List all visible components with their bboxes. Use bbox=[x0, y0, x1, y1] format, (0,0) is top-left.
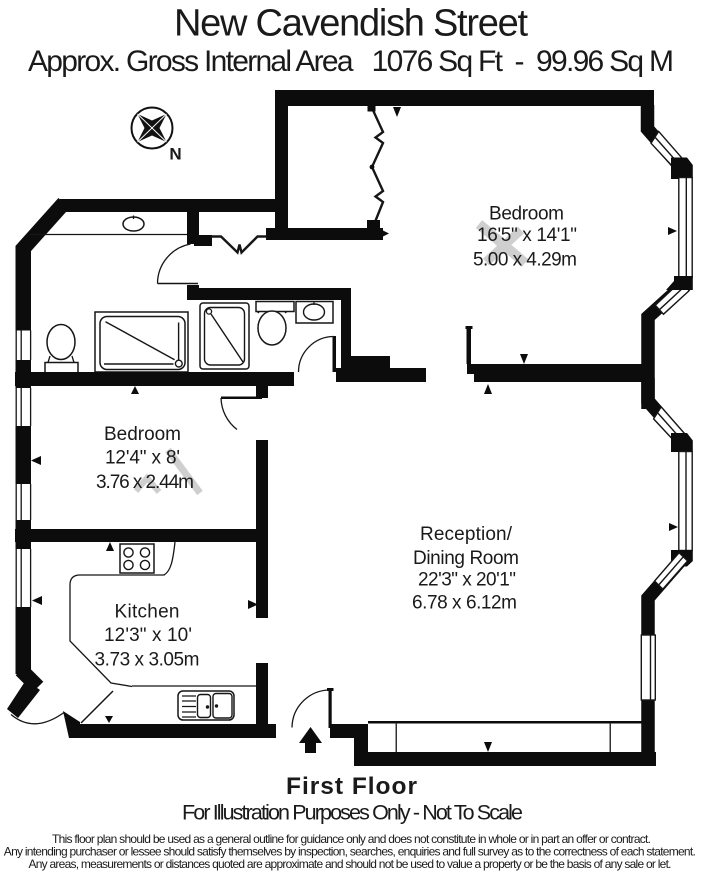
svg-text:N: N bbox=[169, 145, 181, 164]
svg-text:Bedroom: Bedroom bbox=[489, 204, 564, 225]
svg-text:Dining Room: Dining Room bbox=[413, 548, 519, 569]
svg-text:New Cavendish Street: New Cavendish Street bbox=[174, 3, 528, 45]
svg-text:Approx. Gross Internal Area: Approx. Gross Internal Area 1076 Sq Ft -… bbox=[28, 45, 674, 78]
svg-text:For Illustration Purposes Only: For Illustration Purposes Only - Not To … bbox=[182, 801, 523, 825]
svg-text:Any areas, measurements or dis: Any areas, measurements or distances quo… bbox=[29, 857, 672, 871]
svg-text:16'5" x 14'1": 16'5" x 14'1" bbox=[477, 225, 577, 246]
svg-text:12'3" x 10': 12'3" x 10' bbox=[104, 625, 192, 646]
svg-text:Kitchen: Kitchen bbox=[115, 602, 180, 623]
svg-text:Bedroom: Bedroom bbox=[104, 424, 181, 445]
svg-text:First Floor: First Floor bbox=[286, 773, 417, 800]
svg-text:3.76 x 2.44m: 3.76 x 2.44m bbox=[96, 472, 194, 493]
svg-text:22'3" x 20'1": 22'3" x 20'1" bbox=[418, 570, 516, 591]
svg-text:3.73 x 3.05m: 3.73 x 3.05m bbox=[95, 650, 200, 671]
svg-text:6.78 x 6.12m: 6.78 x 6.12m bbox=[412, 593, 517, 614]
svg-text:12'4" x 8': 12'4" x 8' bbox=[105, 448, 180, 469]
svg-text:Reception/: Reception/ bbox=[420, 524, 513, 545]
svg-text:5.00 x 4.29m: 5.00 x 4.29m bbox=[473, 250, 577, 271]
